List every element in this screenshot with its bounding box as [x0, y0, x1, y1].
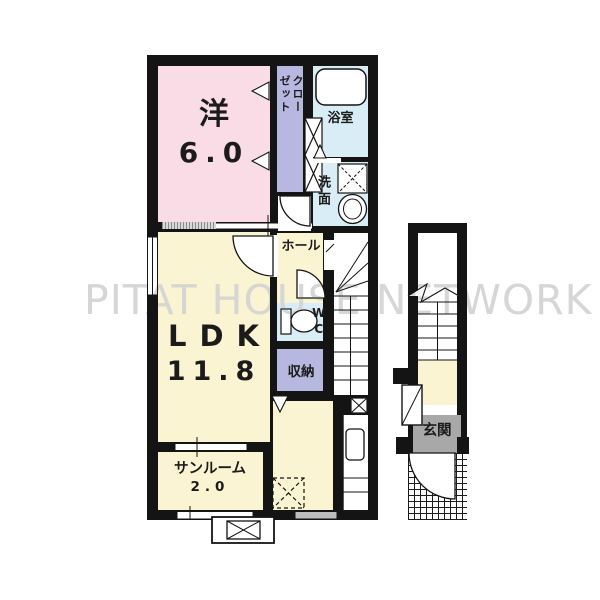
label-storage: 収納 — [277, 365, 325, 381]
sunroom-window-icon — [175, 437, 247, 457]
label-entrance: 玄関 — [413, 423, 461, 440]
sunroom-size: 2.0 — [155, 480, 265, 496]
ldk-size: 11.8 — [158, 356, 270, 387]
label-sunroom: サンルーム 2.0 — [155, 461, 265, 495]
label-closet: クローゼット — [278, 72, 304, 116]
label-bath: 浴室 — [313, 112, 368, 127]
refrigerator-space-icon — [273, 478, 304, 508]
label-ldk: LDK 11.8 — [158, 320, 270, 387]
washbasin-icon — [339, 195, 367, 224]
entrance-door-icon — [409, 453, 455, 499]
western-size: 6.0 — [158, 137, 270, 169]
western-name: 洋 — [158, 98, 270, 133]
label-washroom: 洗面 — [314, 170, 329, 214]
bathtub-icon — [316, 69, 366, 105]
stair-opening — [324, 240, 334, 270]
kitchen-sink-icon — [343, 415, 368, 510]
storage-door-icon — [272, 396, 288, 412]
kitchen-window-icon — [351, 398, 367, 413]
ldk-name: LDK — [168, 320, 270, 353]
floor-plan: 洋 6.0 クローゼット 浴室 洗面 ホール WC 収納 LDK 11.8 サン… — [0, 0, 600, 600]
washing-machine-icon — [338, 164, 367, 193]
washroom-door-icon — [278, 196, 311, 231]
label-hall: ホール — [277, 240, 325, 255]
watermark: PITAT HOUSE NETWORK — [84, 276, 600, 324]
outdoor-unit-icon — [212, 517, 274, 543]
sunroom-name: サンルーム — [155, 461, 265, 478]
shoe-cabinet-icon — [402, 385, 422, 425]
label-western-room: 洋 6.0 — [158, 98, 270, 169]
ldk-door-icon — [233, 235, 278, 277]
